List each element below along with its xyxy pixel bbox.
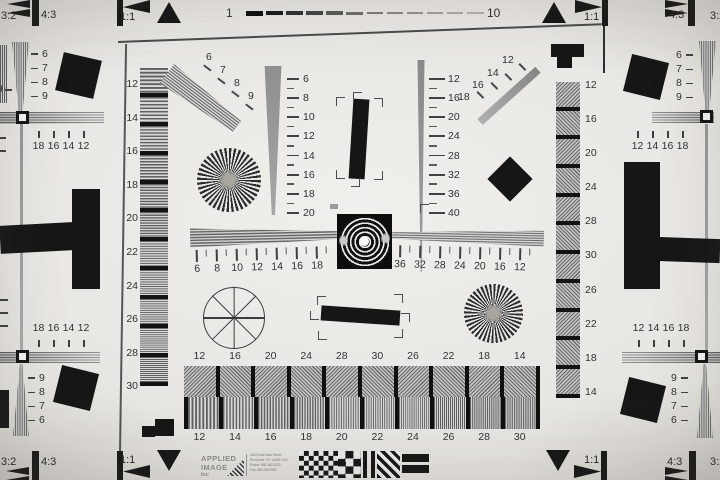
scale-entry: 9 xyxy=(31,90,48,104)
fan-label: 18 xyxy=(458,92,470,103)
black-t-bar-stem xyxy=(624,162,660,289)
scale-entry: 8 xyxy=(676,76,693,90)
aspect-label-1-1: 1:1 xyxy=(120,455,135,466)
fan-label: 16 xyxy=(472,80,484,91)
edge-reference-line xyxy=(603,26,605,73)
column-label: 12 xyxy=(585,80,607,114)
partial-tick xyxy=(0,137,6,139)
column-labels-left: 12141618202224262830 xyxy=(112,79,138,415)
black-diamond-target xyxy=(487,156,532,201)
alignment-stub xyxy=(330,204,338,209)
tilted-reference-line-top xyxy=(118,23,602,42)
partial-digit: 9 xyxy=(0,84,3,95)
resolution-cell xyxy=(556,197,580,226)
frequency-row-18-12: 18161412 xyxy=(31,323,91,347)
black-t-bar-stem xyxy=(72,189,100,289)
resolution-cell xyxy=(258,397,293,429)
ruler-dash xyxy=(387,12,404,14)
scale-entry: 9 xyxy=(676,91,693,105)
fiducial-bracket xyxy=(351,178,360,187)
resolution-cell xyxy=(556,254,580,283)
resolution-cell xyxy=(188,397,223,429)
ruler-dash xyxy=(286,11,303,15)
wedge-scale-6789: 6789 xyxy=(31,47,48,104)
column-label: 14 xyxy=(585,387,607,421)
checkerboard-coarse xyxy=(338,451,361,478)
column-label: 12 xyxy=(112,79,138,113)
resolution-strip-right xyxy=(556,82,580,398)
aspect-label-1-1: 1:1 xyxy=(584,455,599,466)
end-mark xyxy=(557,57,572,68)
frequency-tick: 18 xyxy=(31,131,46,155)
frequency-tick: 12 xyxy=(76,131,91,155)
column-label: 16 xyxy=(585,114,607,148)
ruler-dash xyxy=(427,12,444,14)
hyperbolic-fan-top xyxy=(12,42,29,112)
partial-black-square xyxy=(0,390,9,428)
resolution-cell xyxy=(434,397,469,429)
strip-label: 30 xyxy=(362,351,393,362)
resolution-cell xyxy=(556,225,580,254)
wedge-scale-9876: 9876 xyxy=(671,371,688,428)
resolution-cell xyxy=(364,397,399,429)
aspect-label-1-1: 1:1 xyxy=(584,12,599,23)
end-mark xyxy=(551,44,584,57)
frequency-tick: 12 xyxy=(630,131,645,155)
spoked-circle-target xyxy=(203,287,265,349)
resolution-cell xyxy=(184,366,220,397)
frequency-row-12-18: 12141618 xyxy=(631,323,691,347)
aspect-label-3-2-partial: 3:2 xyxy=(710,457,720,468)
logo-line-2: IMAGE xyxy=(201,464,236,472)
partial-tick xyxy=(0,312,8,314)
resolution-cell xyxy=(556,283,580,312)
frequency-ruler-right: 36322824201612 xyxy=(399,245,540,276)
frequency-tick: 18 xyxy=(31,323,46,347)
strip-label: 22 xyxy=(433,351,464,362)
slanted-edge-bar xyxy=(349,99,370,180)
column-label: 20 xyxy=(585,148,607,182)
scale-entry: 7 xyxy=(28,399,45,413)
strip-label: 26 xyxy=(433,432,464,443)
crosshair-square xyxy=(695,350,708,363)
crop-flag-triangle-icon xyxy=(7,0,30,8)
column-label: 24 xyxy=(112,281,138,315)
column-label: 24 xyxy=(585,182,607,216)
strip-label: 28 xyxy=(469,432,500,443)
resolution-cell xyxy=(556,340,580,369)
frequency-tick: 16 xyxy=(46,323,61,347)
frequency-tick: 14 xyxy=(646,323,661,347)
fiducial-bracket xyxy=(420,204,429,213)
horizontal-wedge-right xyxy=(392,227,544,246)
fan-tick xyxy=(245,103,253,110)
scale-entry: 8 xyxy=(28,385,45,399)
end-mark xyxy=(142,426,155,437)
aspect-label-1-1: 1:1 xyxy=(120,12,135,23)
fan-tick xyxy=(491,82,498,89)
ruler-dash xyxy=(447,12,464,14)
fan-spine xyxy=(705,124,709,350)
ruler-dash xyxy=(467,12,484,14)
address-block: 1653 East Main StreetRochester, NY 14609… xyxy=(250,453,288,474)
wedge-scale-6789: 6789 xyxy=(676,48,693,105)
slanted-edge-bar-horizontal xyxy=(321,305,401,325)
resolution-cell xyxy=(220,366,256,397)
scale-entry: 6 xyxy=(676,48,693,62)
fan-label: 14 xyxy=(487,68,499,79)
resolution-cell xyxy=(556,139,580,168)
ruler-group: 12 xyxy=(519,248,540,276)
resolution-cell xyxy=(469,366,505,397)
resolution-cell xyxy=(291,366,327,397)
zone-plate-center xyxy=(360,237,369,246)
fiducial-bracket xyxy=(374,98,383,107)
crop-flag-triangle-icon xyxy=(665,0,688,8)
fan-tick xyxy=(231,90,239,97)
fiducial-bracket xyxy=(374,171,383,180)
resolution-cell xyxy=(505,397,540,429)
crop-flag-bar xyxy=(602,0,608,26)
strip-label: 26 xyxy=(398,351,429,362)
crop-flag-triangle-icon xyxy=(665,476,688,480)
fan-tick xyxy=(477,91,484,98)
ruler-dash xyxy=(326,11,343,14)
fan-label: 9 xyxy=(248,91,254,102)
frequency-tick: 14 xyxy=(645,131,660,155)
ruler-dash xyxy=(306,11,323,15)
scale-entry: 7 xyxy=(671,399,688,413)
partial-tick xyxy=(0,299,8,301)
black-square-target xyxy=(55,52,102,99)
column-label: 30 xyxy=(112,381,138,415)
column-label: 22 xyxy=(112,247,138,281)
siemens-star xyxy=(464,284,523,343)
hyperbolic-fan-bottom xyxy=(13,364,29,436)
resolution-cell xyxy=(140,155,168,184)
column-label: 16 xyxy=(112,146,138,180)
strip-label: 12 xyxy=(184,351,215,362)
ruler-dash xyxy=(367,12,384,15)
resolution-cell xyxy=(326,366,362,397)
siemens-star xyxy=(197,148,261,212)
crop-flag-triangle-icon xyxy=(665,467,688,475)
partial-tick xyxy=(0,150,6,152)
resolution-cell xyxy=(504,366,540,397)
scale-entry: 8 xyxy=(31,75,48,89)
resolution-cell xyxy=(433,366,469,397)
crop-flag-triangle-icon xyxy=(123,465,150,478)
crop-flag-triangle-icon xyxy=(6,467,29,475)
logo-line-1: APPLIED xyxy=(201,455,236,463)
frequency-tick: 14 xyxy=(61,323,76,347)
resolution-cell xyxy=(140,126,168,155)
resolution-cell xyxy=(329,397,364,429)
scale-entry: 6 xyxy=(671,414,688,428)
column-label: 30 xyxy=(585,250,607,284)
frequency-tick: 12 xyxy=(631,323,646,347)
strip-label: 30 xyxy=(504,432,535,443)
resolution-cell xyxy=(362,366,398,397)
resolution-strip-left xyxy=(140,68,168,386)
scale-entry: 9 xyxy=(28,371,45,385)
strip-label: 22 xyxy=(362,432,393,443)
resolution-cell xyxy=(140,212,168,241)
resolution-cell xyxy=(140,270,168,299)
diagonal-bar-block xyxy=(377,451,400,478)
ruler-dash xyxy=(246,11,263,16)
ruler-dash xyxy=(346,12,363,15)
partial-tick xyxy=(0,325,8,327)
crop-flag-triangle-icon xyxy=(574,465,601,478)
frequency-tick: 12 xyxy=(76,323,91,347)
strip-row-diagonal xyxy=(184,366,540,397)
registration-triangle-icon xyxy=(157,2,181,23)
column-labels-right: 12162024283026221814 xyxy=(585,80,607,421)
strip-label: 28 xyxy=(326,351,357,362)
strip-label: 18 xyxy=(469,351,500,362)
resolution-cell xyxy=(140,357,168,386)
horizontal-wedge-left xyxy=(190,225,337,247)
strip-label: 24 xyxy=(398,432,429,443)
resolution-cell xyxy=(255,366,291,397)
resolution-cell xyxy=(470,397,505,429)
frequency-tick: 16 xyxy=(661,323,676,347)
diagonal-fan-wedge xyxy=(160,64,245,136)
aspect-label-3-2-partial: 3:2 xyxy=(710,11,720,22)
strip-label: 12 xyxy=(184,432,215,443)
fiducial-bracket xyxy=(394,329,403,338)
iso12233-resolution-test-chart: 3:2 4:3 1:1 1 10 1:1 4:3 3:2 9 6789 1816… xyxy=(0,0,720,480)
resolution-cell xyxy=(223,397,258,429)
frequency-ruler-left: 681012141618 xyxy=(196,246,337,278)
crosshair-square xyxy=(16,111,29,124)
horizontal-bar-pair xyxy=(402,465,429,473)
fan-tick xyxy=(519,63,526,70)
crosshair-square xyxy=(16,350,29,363)
fan-tick xyxy=(505,73,512,80)
fiducial-bracket xyxy=(317,296,326,305)
fan-label: 7 xyxy=(220,65,226,76)
crop-flag-bar xyxy=(601,451,607,480)
aspect-label-4-3: 4:3 xyxy=(41,457,56,468)
crop-flag-bar xyxy=(32,451,39,480)
hyperbolic-fan-top xyxy=(699,41,716,111)
ruler-dash xyxy=(266,11,283,16)
resolution-cell xyxy=(399,397,434,429)
column-label: 18 xyxy=(585,353,607,387)
strip-labels-top: 12162024283026221814 xyxy=(184,351,540,362)
column-label: 22 xyxy=(585,319,607,353)
fan-cross-arm xyxy=(0,352,100,364)
crop-flag-bar xyxy=(688,0,695,26)
strip-label: 24 xyxy=(291,351,322,362)
scale-entry: 6 xyxy=(28,414,45,428)
resolution-cell xyxy=(556,369,580,398)
fiducial-bracket xyxy=(336,97,345,106)
ruler-end-label: 10 xyxy=(487,7,500,19)
fan-label: 8 xyxy=(234,78,240,89)
black-square-target xyxy=(53,365,99,411)
wedge-scale-9876: 9876 xyxy=(28,371,45,428)
checkerboard-fine xyxy=(299,451,338,478)
column-label: 26 xyxy=(112,314,138,348)
column-label: 28 xyxy=(112,348,138,382)
resolution-cell xyxy=(556,312,580,341)
fiducial-bracket xyxy=(401,313,410,322)
fan-label: 12 xyxy=(502,55,514,66)
fiducial-bracket xyxy=(310,311,319,320)
resolution-cell xyxy=(140,97,168,126)
aspect-label-4-3: 4:3 xyxy=(669,10,684,21)
aspect-label-3-2: 3:2 xyxy=(1,457,16,468)
fiducial-bracket xyxy=(394,294,403,303)
frequency-tick: 18 xyxy=(675,131,690,155)
fan-label: 6 xyxy=(206,52,212,63)
aspect-label-4-3: 4:3 xyxy=(41,10,56,21)
fading-dash-ruler xyxy=(246,10,487,16)
column-label: 28 xyxy=(585,216,607,250)
strip-label: 14 xyxy=(504,351,535,362)
frequency-tick: 16 xyxy=(660,131,675,155)
crosshair-square xyxy=(700,110,713,123)
frequency-tick: 14 xyxy=(61,131,76,155)
logo-divider xyxy=(246,454,247,476)
column-label: 18 xyxy=(112,180,138,214)
strip-label: 18 xyxy=(291,432,322,443)
address-line: Fax: 585 288 5989 xyxy=(250,468,288,473)
black-square-target xyxy=(620,377,666,423)
strip-label: 16 xyxy=(255,432,286,443)
ruler-dash xyxy=(407,12,424,14)
scale-entry: 9 xyxy=(671,371,688,385)
fiducial-bracket xyxy=(336,170,345,179)
vertical-wedge-pair xyxy=(263,66,283,215)
scale-entry: 7 xyxy=(31,61,48,75)
scale-entry: 7 xyxy=(676,62,693,76)
black-t-bar-arm xyxy=(0,222,76,254)
vertical-bar-pair xyxy=(371,451,375,478)
fiducial-bracket xyxy=(318,331,327,340)
resolution-cell xyxy=(140,184,168,213)
hyperbolic-fan-bottom xyxy=(697,364,713,438)
registration-triangle-icon xyxy=(542,2,566,23)
registration-triangle-icon xyxy=(546,450,570,471)
registration-triangle-icon xyxy=(157,450,181,471)
resolution-cell xyxy=(140,241,168,270)
column-label: 14 xyxy=(112,113,138,147)
horizontal-bar-pair xyxy=(402,454,429,462)
resolution-cell xyxy=(556,82,580,111)
crop-flag-triangle-icon xyxy=(6,476,29,480)
frequency-row-18-12: 18161412 xyxy=(31,131,91,155)
resolution-cell xyxy=(556,111,580,140)
black-t-bar-arm xyxy=(659,237,720,263)
crop-flag-bar xyxy=(32,0,39,26)
column-label: 26 xyxy=(585,285,607,319)
resolution-cell xyxy=(398,366,434,397)
frequency-tick: 16 xyxy=(46,131,61,155)
end-mark xyxy=(155,419,174,436)
fiducial-bracket xyxy=(353,92,362,101)
strip-row-vertical xyxy=(184,397,540,429)
strip-label: 20 xyxy=(255,351,286,362)
resolution-cell xyxy=(556,168,580,197)
resolution-cell xyxy=(140,299,168,328)
strip-label: 16 xyxy=(220,351,251,362)
zone-plate-target xyxy=(337,214,392,269)
scale-entry: 8 xyxy=(671,385,688,399)
resolution-cell xyxy=(140,328,168,357)
fan-tick xyxy=(203,64,211,71)
scale-entry: 6 xyxy=(31,47,48,61)
strip-labels-bottom: 12141618202224262830 xyxy=(184,432,540,443)
ruler-start-label: 1 xyxy=(226,7,233,19)
black-square-target xyxy=(623,54,669,100)
strip-label: 14 xyxy=(220,432,251,443)
ruler-group: 18 xyxy=(316,246,337,275)
resolution-cell xyxy=(294,397,329,429)
frequency-row-12-18: 12141618 xyxy=(630,131,690,155)
column-label: 20 xyxy=(112,213,138,247)
strip-label: 20 xyxy=(326,432,357,443)
fan-tick xyxy=(217,77,225,84)
aspect-label-4-3: 4:3 xyxy=(667,457,682,468)
partial-tick xyxy=(5,89,12,91)
vertical-bar-pair xyxy=(363,451,367,478)
frequency-tick: 18 xyxy=(676,323,691,347)
crop-flag-bar xyxy=(689,451,696,480)
